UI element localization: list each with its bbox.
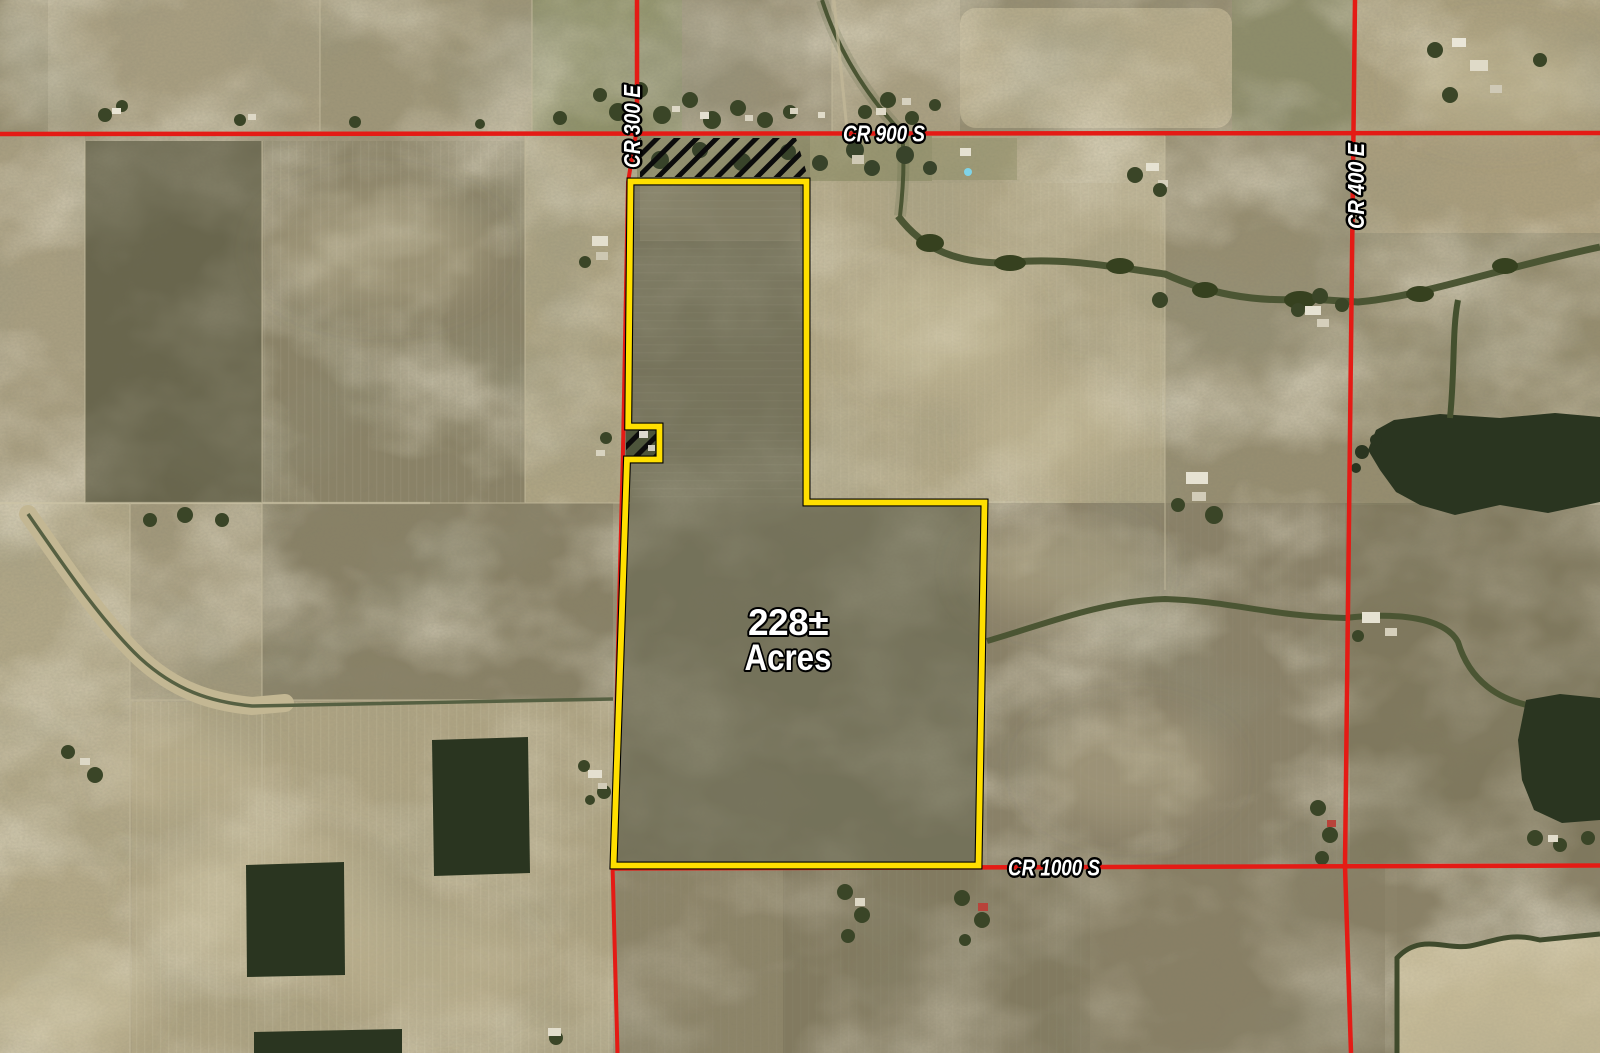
- svg-text:Acres: Acres: [745, 637, 832, 678]
- svg-text:CR 400 E: CR 400 E: [1343, 142, 1369, 229]
- svg-text:CR 900 S: CR 900 S: [843, 121, 926, 147]
- svg-text:CR 1000 S: CR 1000 S: [1008, 855, 1101, 881]
- svg-text:CR 300 E: CR 300 E: [619, 84, 645, 168]
